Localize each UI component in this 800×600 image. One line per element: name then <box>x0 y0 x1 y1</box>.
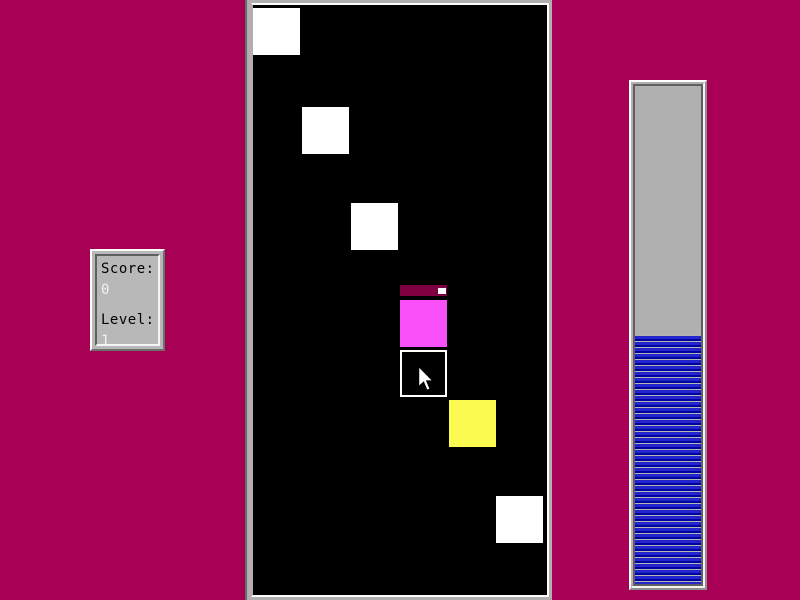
progress-bar-fill <box>635 335 701 584</box>
level-label: Level: <box>101 310 156 331</box>
progress-bar-bevel <box>631 82 705 588</box>
square-4[interactable] <box>400 300 447 347</box>
score-panel-outline: Score: 0 Level: 1 <box>95 254 160 346</box>
square-1[interactable] <box>253 8 300 55</box>
score-panel: Score: 0 Level: 1 <box>90 249 165 351</box>
white-speck <box>438 288 446 294</box>
progress-bar-trough <box>633 84 703 586</box>
game-field-frame <box>245 0 552 600</box>
square-3[interactable] <box>351 203 398 250</box>
game-window: Score: 0 Level: 1 <box>0 0 800 600</box>
square-7[interactable] <box>496 496 543 543</box>
panel-spacer <box>101 301 156 310</box>
square-2[interactable] <box>302 107 349 154</box>
game-canvas[interactable] <box>251 3 549 597</box>
level-value: 1 <box>101 331 156 352</box>
score-value: 0 <box>101 280 156 301</box>
square-5[interactable] <box>400 350 447 397</box>
level-progress-bar <box>629 80 707 590</box>
score-label: Score: <box>101 259 156 280</box>
square-6[interactable] <box>449 400 496 447</box>
